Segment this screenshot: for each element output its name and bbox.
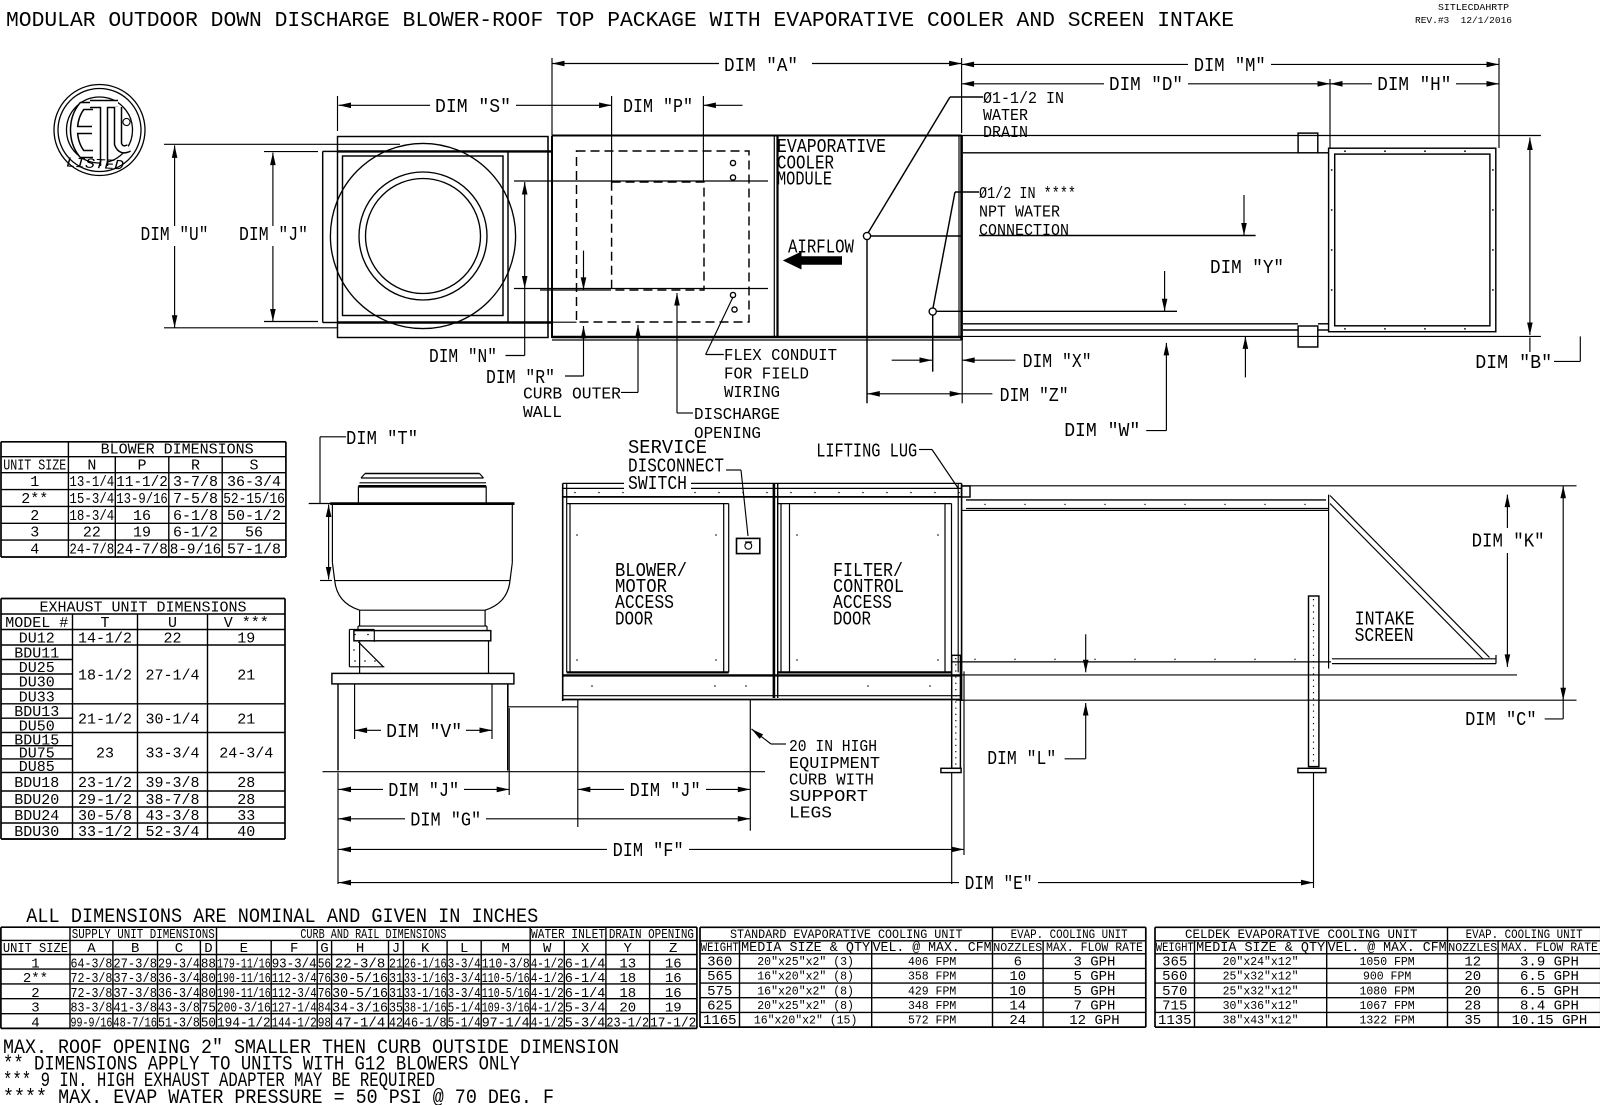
svg-text:5-3/4: 5-3/4 (565, 1001, 606, 1017)
svg-text:DIM "D": DIM "D" (1109, 74, 1183, 96)
svg-text:21: 21 (237, 711, 255, 728)
svg-text:5 GPH: 5 GPH (1073, 984, 1115, 1000)
svg-text:30"x36"x12": 30"x36"x12" (1223, 1000, 1299, 1013)
svg-text:CONNECTION: CONNECTION (979, 222, 1069, 241)
svg-text:VEL. @ MAX. CFM: VEL. @ MAX. CFM (873, 940, 992, 956)
svg-text:LIFTING LUG: LIFTING LUG (816, 441, 917, 463)
svg-text:MAX. FLOW RATE: MAX. FLOW RATE (1501, 940, 1598, 955)
svg-text:110-5/16: 110-5/16 (482, 971, 530, 987)
svg-text:33-1/16: 33-1/16 (404, 971, 447, 987)
svg-text:84: 84 (318, 1001, 331, 1017)
svg-text:43-3/8: 43-3/8 (145, 808, 199, 825)
svg-text:6-1/8: 6-1/8 (173, 508, 218, 525)
svg-text:A: A (87, 941, 96, 957)
svg-text:98: 98 (318, 1016, 331, 1032)
svg-text:BDU30: BDU30 (14, 824, 59, 841)
svg-text:18: 18 (619, 971, 636, 987)
svg-text:B: B (131, 941, 139, 957)
svg-text:MODULE: MODULE (777, 169, 832, 191)
svg-text:6: 6 (1014, 955, 1022, 971)
svg-text:LISTED: LISTED (65, 155, 124, 174)
svg-text:35: 35 (1464, 1013, 1481, 1029)
svg-text:Y: Y (624, 941, 633, 957)
svg-text:93-3/4: 93-3/4 (272, 957, 317, 973)
svg-text:24: 24 (1009, 1013, 1026, 1029)
svg-text:DIM "A": DIM "A" (724, 55, 798, 77)
svg-text:DIM "P": DIM "P" (623, 96, 693, 118)
svg-text:F: F (290, 941, 298, 957)
svg-text:72-3/8: 72-3/8 (71, 986, 113, 1002)
svg-text:28: 28 (237, 792, 255, 809)
svg-text:110-3/8: 110-3/8 (482, 957, 530, 973)
svg-text:3-7/8: 3-7/8 (173, 474, 218, 491)
svg-text:109-3/16: 109-3/16 (482, 1001, 530, 1017)
svg-text:J: J (392, 941, 400, 957)
svg-text:20: 20 (619, 1001, 636, 1017)
svg-text:ALL DIMENSIONS ARE NOMINAL AND: ALL DIMENSIONS ARE NOMINAL AND GIVEN IN … (26, 906, 538, 929)
svg-text:37-3/8: 37-3/8 (113, 971, 157, 987)
svg-text:X: X (581, 941, 590, 957)
svg-text:33-3/4: 33-3/4 (145, 746, 199, 763)
svg-text:36-3/4: 36-3/4 (227, 474, 281, 491)
svg-text:14: 14 (1009, 999, 1026, 1015)
svg-text:21: 21 (389, 957, 403, 973)
svg-text:46-1/8: 46-1/8 (404, 1016, 447, 1032)
svg-text:560: 560 (1162, 969, 1187, 985)
svg-text:4-1/2: 4-1/2 (531, 971, 564, 987)
svg-text:DIM "Z": DIM "Z" (1000, 385, 1069, 407)
svg-text:23: 23 (96, 746, 114, 763)
svg-text:DIM "X": DIM "X" (1023, 351, 1092, 373)
svg-text:BLOWER DIMENSIONS: BLOWER DIMENSIONS (101, 442, 254, 459)
svg-text:179-11/16: 179-11/16 (217, 957, 271, 973)
svg-text:DOOR: DOOR (833, 609, 871, 631)
svg-text:DIM "M": DIM "M" (1194, 55, 1266, 77)
svg-text:13-9/16: 13-9/16 (116, 491, 168, 508)
svg-text:H: H (356, 941, 364, 957)
svg-text:1: 1 (31, 957, 39, 973)
svg-text:26-1/16: 26-1/16 (404, 957, 447, 973)
svg-text:K: K (421, 941, 430, 957)
svg-text:MAX. FLOW RATE: MAX. FLOW RATE (1046, 940, 1143, 955)
svg-text:1322 FPM: 1322 FPM (1359, 1015, 1414, 1028)
svg-text:34-3/16: 34-3/16 (332, 1001, 388, 1017)
svg-text:19: 19 (133, 525, 151, 542)
svg-text:31: 31 (389, 971, 403, 987)
svg-text:99-9/16: 99-9/16 (71, 1016, 113, 1032)
svg-text:REV.#3 12/1/2016: REV.#3 12/1/2016 (1415, 16, 1512, 26)
svg-text:20: 20 (1464, 984, 1481, 1000)
svg-text:FLEX CONDUIT: FLEX CONDUIT (724, 347, 837, 366)
svg-text:144-1/2: 144-1/2 (272, 1016, 317, 1032)
svg-text:3-3/4: 3-3/4 (448, 971, 481, 987)
svg-text:6.5 GPH: 6.5 GPH (1520, 969, 1579, 985)
svg-text:29-1/2: 29-1/2 (78, 792, 132, 809)
svg-text:11-1/2: 11-1/2 (116, 474, 168, 491)
svg-text:56: 56 (245, 525, 263, 542)
svg-text:25"x32"x12": 25"x32"x12" (1223, 985, 1299, 998)
svg-text:1: 1 (30, 474, 39, 491)
svg-text:28: 28 (237, 775, 255, 792)
svg-text:L: L (460, 941, 468, 957)
svg-text:110-5/16: 110-5/16 (482, 986, 530, 1002)
svg-text:WALL: WALL (523, 404, 562, 423)
svg-text:41-3/8: 41-3/8 (113, 1001, 157, 1017)
svg-text:190-11/16: 190-11/16 (217, 986, 271, 1002)
svg-text:575: 575 (707, 984, 732, 1000)
svg-text:5-3/4: 5-3/4 (565, 1016, 606, 1032)
svg-text:**** MAX. EVAP WATER PRESSURE: **** MAX. EVAP WATER PRESSURE = 50 PSI @… (3, 1087, 554, 1105)
svg-text:SCREEN: SCREEN (1355, 625, 1414, 647)
svg-text:36-3/4: 36-3/4 (158, 971, 200, 987)
svg-text:715: 715 (1162, 999, 1187, 1015)
svg-text:DIM "Y": DIM "Y" (1210, 257, 1284, 279)
svg-text:900 FPM: 900 FPM (1363, 971, 1411, 984)
svg-text:E: E (240, 941, 248, 957)
svg-text:406 FPM: 406 FPM (908, 956, 956, 969)
svg-text:DIM "J": DIM "J" (239, 224, 308, 246)
svg-text:76: 76 (318, 971, 331, 987)
svg-text:VEL. @ MAX. CFM: VEL. @ MAX. CFM (1328, 940, 1447, 956)
svg-text:4-1/2: 4-1/2 (531, 1001, 564, 1017)
svg-text:358 FPM: 358 FPM (908, 971, 956, 984)
svg-text:G: G (320, 941, 328, 957)
svg-text:BDU18: BDU18 (14, 775, 59, 792)
svg-text:6-1/2: 6-1/2 (173, 525, 218, 542)
svg-text:36-3/4: 36-3/4 (158, 986, 200, 1002)
svg-text:27-1/4: 27-1/4 (145, 668, 199, 685)
svg-text:348 FPM: 348 FPM (908, 1000, 956, 1013)
svg-text:DIM "V": DIM "V" (386, 721, 462, 743)
svg-text:50-1/2: 50-1/2 (227, 508, 281, 525)
svg-text:4-1/2: 4-1/2 (531, 1016, 564, 1032)
svg-text:64-3/8: 64-3/8 (71, 957, 113, 973)
svg-text:83-3/8: 83-3/8 (71, 1001, 113, 1017)
svg-text:7-5/8: 7-5/8 (173, 491, 218, 508)
svg-text:15-3/4: 15-3/4 (69, 491, 114, 508)
svg-text:22-3/8: 22-3/8 (335, 957, 385, 973)
svg-text:Ø1/2 IN ****: Ø1/2 IN **** (979, 185, 1076, 204)
svg-text:30-5/16: 30-5/16 (332, 986, 388, 1002)
svg-text:DIM "N": DIM "N" (429, 346, 497, 368)
svg-text:NOZZLES: NOZZLES (993, 941, 1042, 955)
svg-text:14-1/2: 14-1/2 (78, 630, 132, 647)
svg-text:3: 3 (31, 1001, 39, 1017)
svg-text:NPT WATER: NPT WATER (979, 204, 1060, 223)
svg-text:DIM "H": DIM "H" (1377, 74, 1451, 96)
svg-text:200-3/16: 200-3/16 (217, 1001, 271, 1017)
svg-text:SITLECDAHRTP: SITLECDAHRTP (1438, 3, 1509, 13)
svg-text:6-1/4: 6-1/4 (565, 957, 606, 973)
svg-text:194-1/2: 194-1/2 (217, 1016, 271, 1032)
svg-text:CURB OUTER: CURB OUTER (523, 386, 621, 405)
svg-text:16: 16 (665, 957, 682, 973)
svg-text:6-1/4: 6-1/4 (565, 971, 606, 987)
svg-text:47-1/4: 47-1/4 (335, 1016, 385, 1032)
svg-text:V ***: V *** (224, 615, 269, 632)
svg-text:23-1/2: 23-1/2 (78, 775, 132, 792)
svg-text:33-1/16: 33-1/16 (404, 986, 447, 1002)
svg-text:10: 10 (1009, 984, 1026, 1000)
svg-text:21-1/2: 21-1/2 (78, 711, 132, 728)
svg-text:19: 19 (237, 630, 255, 647)
svg-text:1080 FPM: 1080 FPM (1359, 985, 1414, 998)
svg-text:51-3/8: 51-3/8 (158, 1016, 200, 1032)
svg-text:1067 FPM: 1067 FPM (1359, 1000, 1414, 1013)
svg-text:BDU24: BDU24 (14, 808, 59, 825)
svg-text:DRAIN OPENING: DRAIN OPENING (609, 927, 694, 943)
svg-text:76: 76 (318, 986, 331, 1002)
svg-text:MODEL #: MODEL # (5, 615, 68, 632)
svg-text:8-9/16: 8-9/16 (170, 542, 221, 559)
svg-text:35: 35 (389, 1001, 403, 1017)
svg-text:4-1/2: 4-1/2 (531, 986, 564, 1002)
svg-text:75: 75 (201, 1001, 216, 1017)
svg-text:112-3/4: 112-3/4 (272, 971, 317, 987)
svg-text:25"x32"x12": 25"x32"x12" (1223, 971, 1299, 984)
svg-text:10.15 GPH: 10.15 GPH (1512, 1013, 1588, 1029)
svg-text:40: 40 (237, 824, 255, 841)
svg-text:19: 19 (665, 1001, 682, 1017)
svg-text:5 GPH: 5 GPH (1073, 969, 1115, 985)
svg-text:NOZZLES: NOZZLES (1448, 941, 1497, 955)
svg-text:LEGS: LEGS (789, 805, 832, 824)
svg-text:DIM "J": DIM "J" (388, 780, 459, 802)
svg-text:38-1/16: 38-1/16 (404, 1001, 447, 1017)
svg-text:UNIT SIZE: UNIT SIZE (3, 458, 66, 475)
svg-text:31: 31 (389, 986, 403, 1002)
svg-text:C: C (175, 941, 183, 957)
svg-text:88: 88 (201, 957, 216, 973)
svg-text:97-1/4: 97-1/4 (482, 1016, 530, 1032)
svg-text:21: 21 (237, 668, 255, 685)
svg-text:DIM "E": DIM "E" (965, 873, 1033, 895)
svg-text:33: 33 (237, 808, 255, 825)
svg-text:4: 4 (31, 1016, 39, 1032)
svg-text:28: 28 (1464, 999, 1481, 1015)
svg-text:190-11/16: 190-11/16 (217, 971, 271, 987)
svg-text:22: 22 (83, 525, 101, 542)
svg-text:80: 80 (201, 971, 216, 987)
svg-text:1050 FPM: 1050 FPM (1359, 956, 1414, 969)
svg-text:WIRING: WIRING (724, 384, 780, 403)
svg-text:42: 42 (389, 1016, 403, 1032)
svg-text:16"x20"x2" (15): 16"x20"x2" (15) (754, 1015, 858, 1028)
svg-text:DIM "J": DIM "J" (630, 780, 701, 802)
svg-text:DIM "C": DIM "C" (1465, 709, 1537, 731)
svg-text:DIM "L": DIM "L" (987, 748, 1056, 770)
svg-text:D: D (204, 941, 212, 957)
svg-text:27-3/8: 27-3/8 (113, 957, 157, 973)
svg-text:30-5/8: 30-5/8 (78, 808, 132, 825)
svg-text:20"x24"x12": 20"x24"x12" (1223, 956, 1299, 969)
svg-text:2**: 2** (21, 491, 48, 508)
svg-text:16"x20"x2" (8): 16"x20"x2" (8) (757, 985, 854, 998)
svg-text:DIM "F": DIM "F" (613, 840, 684, 862)
svg-text:8.4 GPH: 8.4 GPH (1520, 999, 1579, 1015)
svg-text:5-1/4: 5-1/4 (448, 1016, 481, 1032)
svg-text:24-7/8: 24-7/8 (116, 542, 168, 559)
svg-text:5-1/4: 5-1/4 (448, 1001, 481, 1017)
svg-text:16: 16 (665, 986, 682, 1002)
svg-text:7 GPH: 7 GPH (1073, 999, 1115, 1015)
svg-text:U: U (168, 615, 177, 632)
svg-text:16"x20"x2" (8): 16"x20"x2" (8) (757, 971, 854, 984)
svg-text:72-3/8: 72-3/8 (71, 971, 113, 987)
svg-text:UNIT SIZE: UNIT SIZE (3, 941, 68, 957)
svg-text:2**: 2** (23, 971, 48, 987)
svg-text:13-1/4: 13-1/4 (69, 474, 114, 491)
svg-text:13: 13 (619, 957, 636, 973)
svg-text:N: N (87, 458, 96, 475)
svg-text:18-3/4: 18-3/4 (69, 508, 114, 525)
svg-text:570: 570 (1162, 984, 1187, 1000)
svg-text:DIM "K": DIM "K" (1472, 531, 1545, 553)
svg-text:80: 80 (201, 986, 216, 1002)
svg-text:572 FPM: 572 FPM (908, 1015, 956, 1028)
svg-text:MEDIA SIZE & QTY: MEDIA SIZE & QTY (741, 940, 871, 956)
svg-text:52-15/16: 52-15/16 (223, 491, 285, 508)
svg-text:43-3/8: 43-3/8 (158, 1001, 200, 1017)
svg-text:R: R (191, 458, 200, 475)
svg-text:DRAIN: DRAIN (983, 124, 1028, 143)
svg-text:4-1/2: 4-1/2 (531, 957, 564, 973)
svg-text:MEDIA SIZE & QTY: MEDIA SIZE & QTY (1196, 940, 1326, 956)
svg-text:57-1/8: 57-1/8 (227, 542, 281, 559)
svg-text:6-1/4: 6-1/4 (565, 986, 606, 1002)
svg-text:20: 20 (1464, 969, 1481, 985)
svg-text:SWITCH: SWITCH (628, 473, 687, 495)
svg-text:P: P (138, 458, 147, 475)
svg-text:50: 50 (201, 1016, 216, 1032)
svg-text:39-3/8: 39-3/8 (145, 775, 199, 792)
svg-text:T: T (100, 615, 109, 632)
svg-text:2: 2 (31, 986, 39, 1002)
svg-text:22: 22 (163, 630, 181, 647)
svg-text:30-1/4: 30-1/4 (145, 711, 199, 728)
svg-text:24-3/4: 24-3/4 (219, 746, 273, 763)
svg-text:18-1/2: 18-1/2 (78, 668, 132, 685)
svg-text:DIM "G": DIM "G" (410, 810, 481, 832)
svg-text:DIM "B": DIM "B" (1475, 352, 1552, 374)
svg-text:DIM "U": DIM "U" (141, 224, 209, 246)
svg-text:DIM "W": DIM "W" (1064, 420, 1140, 442)
svg-text:FOR FIELD: FOR FIELD (724, 366, 809, 385)
svg-text:BDU20: BDU20 (14, 792, 59, 809)
svg-text:565: 565 (707, 969, 732, 985)
svg-text:Z: Z (669, 941, 677, 957)
svg-text:2: 2 (30, 508, 39, 525)
svg-text:10: 10 (1009, 969, 1026, 985)
svg-text:DIM "T": DIM "T" (346, 428, 418, 450)
svg-text:DISCHARGE: DISCHARGE (694, 406, 780, 425)
svg-text:30-5/16: 30-5/16 (332, 971, 388, 987)
svg-text:127-1/4: 127-1/4 (272, 1001, 317, 1017)
svg-text:20"x25"x2" (3): 20"x25"x2" (3) (757, 956, 854, 969)
svg-text:360: 360 (707, 955, 732, 971)
svg-text:18: 18 (619, 986, 636, 1002)
svg-text:S: S (250, 458, 259, 475)
svg-text:23-1/2: 23-1/2 (606, 1016, 649, 1032)
svg-text:WEIGHT: WEIGHT (701, 940, 739, 955)
svg-text:MODULAR OUTDOOR DOWN DISCHARGE: MODULAR OUTDOOR DOWN DISCHARGE BLOWER-RO… (6, 10, 1234, 33)
svg-text:17-1/2: 17-1/2 (650, 1016, 696, 1032)
svg-text:12: 12 (1464, 955, 1481, 971)
svg-text:WEIGHT: WEIGHT (1156, 940, 1194, 955)
svg-text:DU85: DU85 (19, 759, 55, 776)
svg-text:20"x25"x2" (8): 20"x25"x2" (8) (757, 1000, 854, 1013)
svg-text:6.5 GPH: 6.5 GPH (1520, 984, 1579, 1000)
svg-text:37-3/8: 37-3/8 (113, 986, 157, 1002)
svg-text:1165: 1165 (703, 1013, 737, 1029)
svg-text:429 FPM: 429 FPM (908, 985, 956, 998)
svg-text:3 GPH: 3 GPH (1073, 955, 1115, 971)
svg-text:16: 16 (665, 971, 682, 987)
svg-text:38-7/8: 38-7/8 (145, 792, 199, 809)
svg-text:EXHAUST UNIT DIMENSIONS: EXHAUST UNIT DIMENSIONS (39, 599, 246, 616)
svg-text:625: 625 (707, 999, 732, 1015)
svg-text:3: 3 (30, 525, 39, 542)
svg-text:365: 365 (1162, 955, 1187, 971)
svg-text:1135: 1135 (1158, 1013, 1192, 1029)
svg-text:52-3/4: 52-3/4 (145, 824, 199, 841)
svg-text:33-1/2: 33-1/2 (78, 824, 132, 841)
svg-text:48-7/16: 48-7/16 (113, 1016, 157, 1032)
svg-text:56: 56 (318, 957, 331, 973)
svg-text:3.9 GPH: 3.9 GPH (1520, 955, 1579, 971)
svg-text:16: 16 (133, 508, 151, 525)
svg-text:29-3/4: 29-3/4 (158, 957, 200, 973)
svg-text:DIM "S": DIM "S" (435, 96, 511, 118)
svg-text:38"x43"x12": 38"x43"x12" (1223, 1015, 1299, 1028)
svg-text:3-3/4: 3-3/4 (448, 957, 481, 973)
svg-text:4: 4 (30, 542, 39, 559)
svg-text:DOOR: DOOR (615, 609, 653, 631)
svg-text:W: W (543, 941, 552, 957)
svg-text:112-3/4: 112-3/4 (272, 986, 317, 1002)
svg-text:24-7/8: 24-7/8 (69, 542, 114, 559)
svg-text:3-3/4: 3-3/4 (448, 986, 481, 1002)
svg-text:12 GPH: 12 GPH (1069, 1013, 1119, 1029)
svg-text:M: M (501, 941, 509, 957)
